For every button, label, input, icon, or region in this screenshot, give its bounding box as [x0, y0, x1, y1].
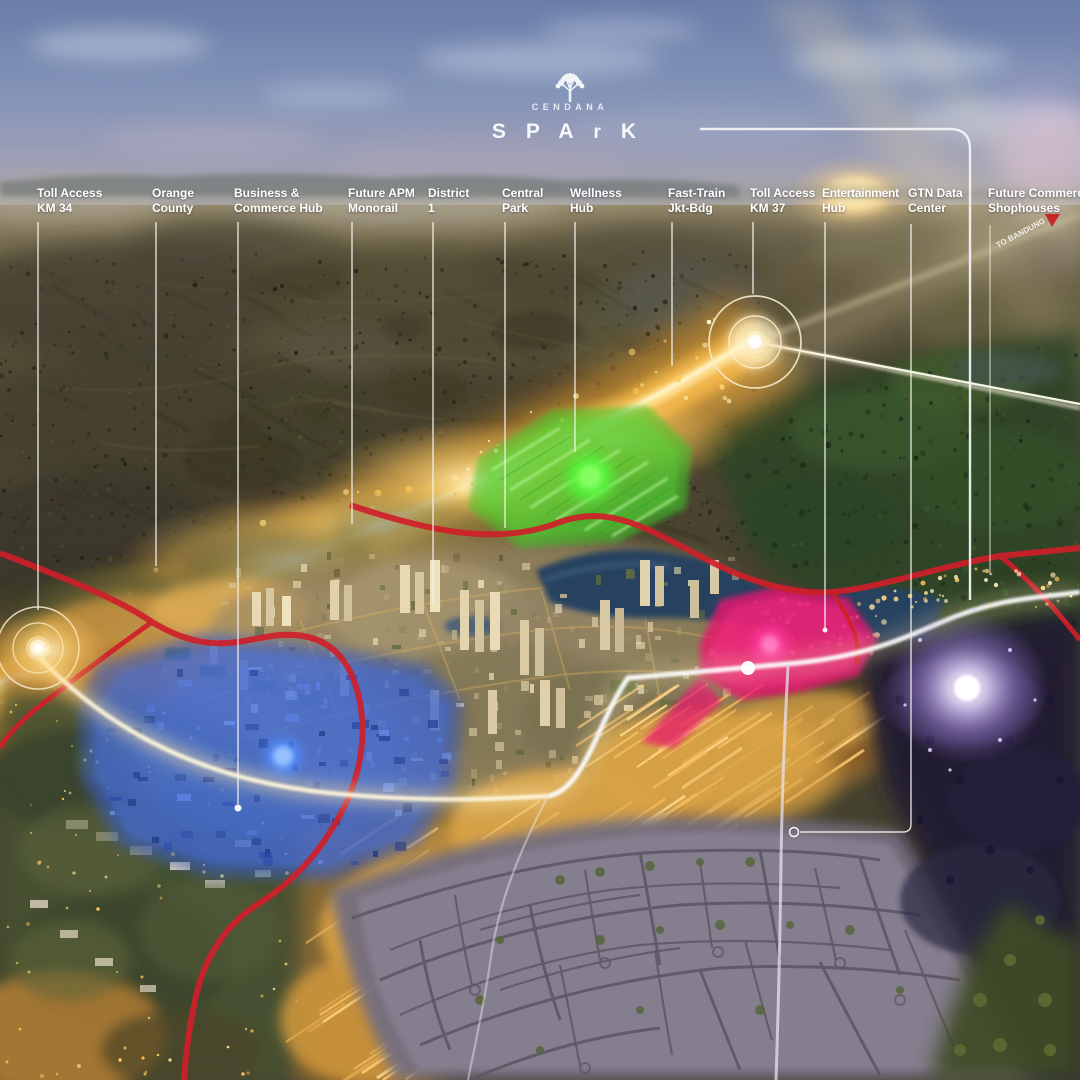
- svg-text:Hub: Hub: [570, 201, 593, 215]
- svg-text:County: County: [152, 201, 194, 215]
- svg-text:KM 37: KM 37: [750, 201, 786, 215]
- svg-text:Toll Access: Toll Access: [37, 186, 103, 200]
- svg-text:Park: Park: [502, 201, 528, 215]
- svg-text:Orange: Orange: [152, 186, 194, 200]
- svg-text:Monorail: Monorail: [348, 201, 398, 215]
- svg-text:Entertainment: Entertainment: [822, 186, 899, 200]
- svg-text:Commerce Hub: Commerce Hub: [234, 201, 323, 215]
- svg-text:District: District: [428, 186, 469, 200]
- svg-text:GTN Data: GTN Data: [908, 186, 963, 200]
- svg-text:Fast-Train: Fast-Train: [668, 186, 725, 200]
- svg-text:Future APM: Future APM: [348, 186, 415, 200]
- svg-text:Future Commerce: Future Commerce: [988, 186, 1080, 200]
- svg-text:Toll Access: Toll Access: [750, 186, 816, 200]
- svg-text:CENDANA: CENDANA: [532, 102, 609, 112]
- svg-text:Jkt-Bdg: Jkt-Bdg: [668, 201, 713, 215]
- svg-text:Wellness: Wellness: [570, 186, 622, 200]
- svg-text:Hub: Hub: [822, 201, 845, 215]
- svg-text:1: 1: [428, 201, 435, 215]
- svg-text:SPArK: SPArK: [492, 120, 656, 143]
- svg-text:Shophouses: Shophouses: [988, 201, 1060, 215]
- svg-text:Business &: Business &: [234, 186, 300, 200]
- svg-text:KM 34: KM 34: [37, 201, 73, 215]
- svg-text:Center: Center: [908, 201, 946, 215]
- svg-text:Central: Central: [502, 186, 543, 200]
